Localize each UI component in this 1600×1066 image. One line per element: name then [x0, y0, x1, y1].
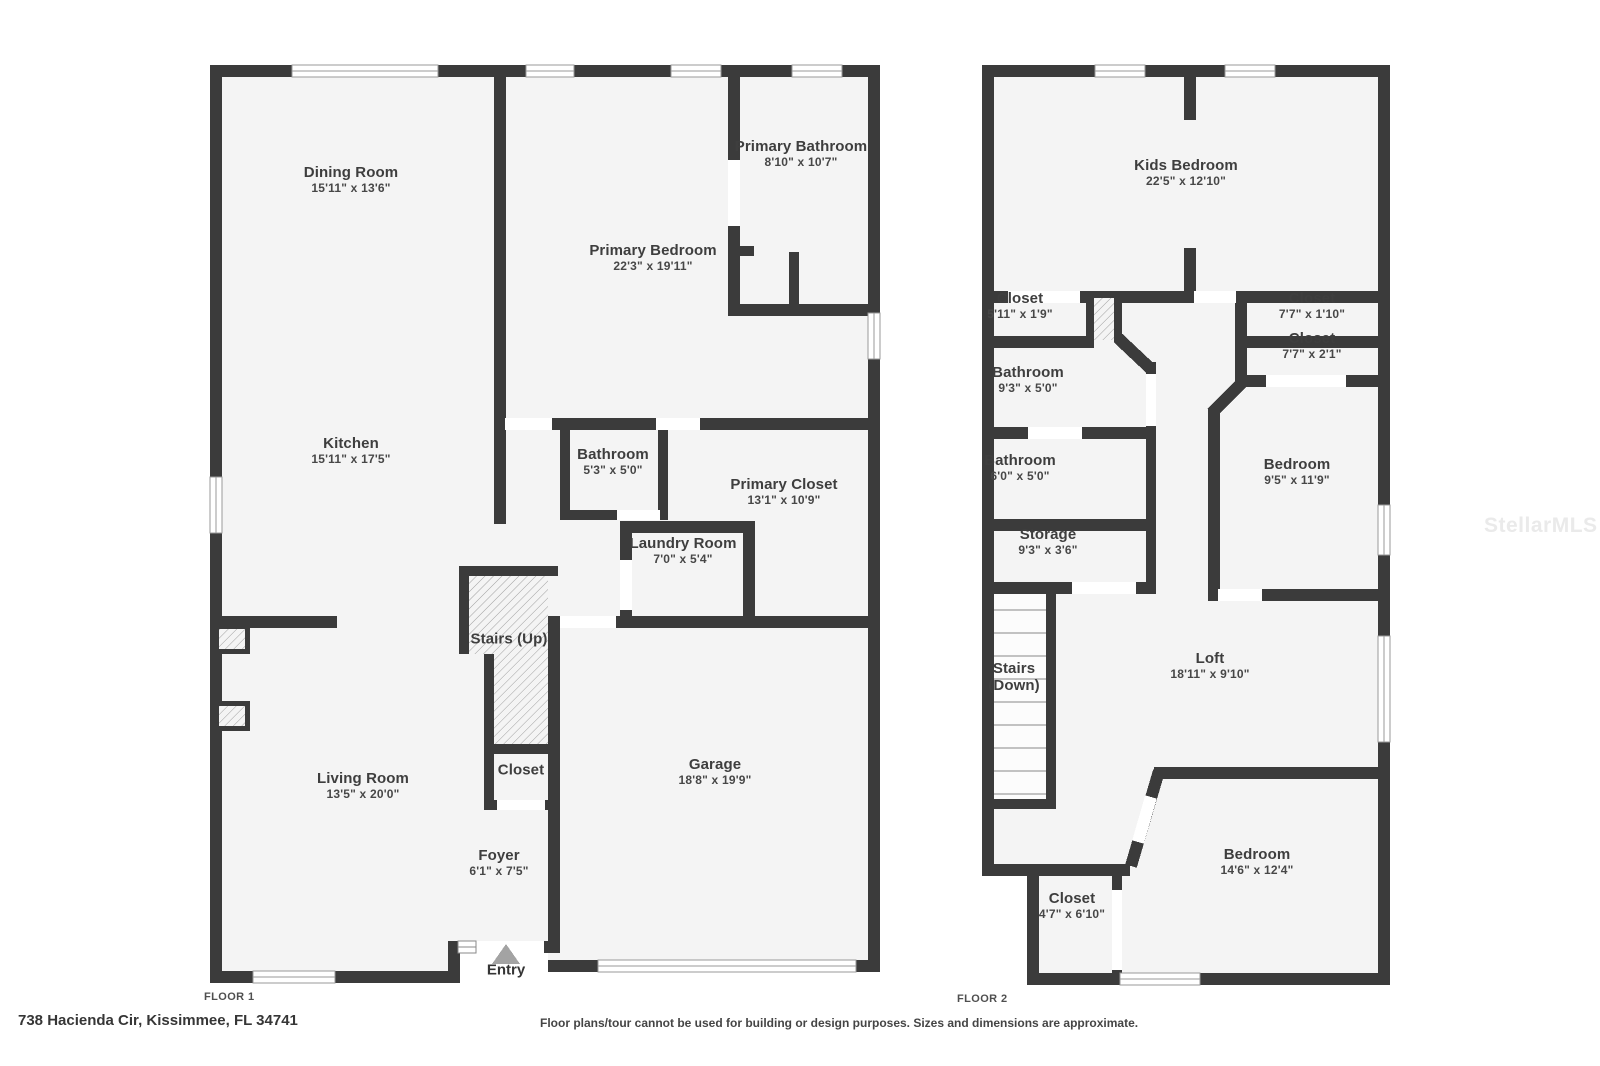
address-text: 738 Hacienda Cir, Kissimmee, FL 34741 [18, 1012, 298, 1029]
room-dimensions: 15'11" x 17'5" [311, 452, 390, 467]
room-name: Storage [1018, 526, 1077, 543]
room-name: Stairs [988, 660, 1039, 677]
room-label: Foyer6'1" x 7'5" [469, 847, 528, 879]
room-label: Primary Bathroom8'10" x 10'7" [735, 138, 867, 170]
room-name: Loft [1170, 650, 1249, 667]
room-label: Primary Bedroom22'3" x 19'11" [589, 242, 716, 274]
room-name: Closet [1279, 290, 1345, 307]
room-name: Garage [678, 756, 751, 773]
fireplace-hatch-1 [219, 629, 245, 649]
room-name: Bathroom [577, 446, 649, 463]
room-label: Closet5'11" x 1'9" [987, 290, 1053, 322]
room-label: Loft18'11" x 9'10" [1170, 650, 1249, 682]
room-dimensions: 6'0" x 5'0" [984, 469, 1056, 484]
watermark: StellarMLS [1484, 514, 1598, 538]
room-label: Bedroom14'6" x 12'4" [1220, 846, 1293, 878]
room-name: Closet [1282, 330, 1341, 347]
room-dimensions: 14'6" x 12'4" [1220, 863, 1293, 878]
room-label: Kitchen15'11" x 17'5" [311, 435, 390, 467]
room-name: Bedroom [1220, 846, 1293, 863]
chase-hatch [1094, 298, 1114, 340]
room-name: Foyer [469, 847, 528, 864]
disclaimer-text: Floor plans/tour cannot be used for buil… [540, 1016, 1138, 1030]
room-dimensions: 9'3" x 3'6" [1018, 543, 1077, 558]
room-label: Kids Bedroom22'5" x 12'10" [1134, 157, 1238, 189]
room-label: Garage18'8" x 19'9" [678, 756, 751, 788]
room-dimensions: 5'11" x 1'9" [987, 307, 1053, 322]
room-name: Primary Bedroom [589, 242, 716, 259]
floor2-plan [982, 65, 1390, 985]
room-dimensions: 7'7" x 2'1" [1282, 347, 1341, 362]
room-name: Living Room [317, 770, 409, 787]
room-name: Bedroom [1264, 456, 1331, 473]
room-dimensions: 7'0" x 5'4" [629, 552, 736, 567]
entry-door-symbol [458, 941, 476, 953]
room-dimensions: 13'1" x 10'9" [730, 493, 837, 508]
room-label: Laundry Room7'0" x 5'4" [629, 535, 736, 567]
room-dimensions: 5'3" x 5'0" [577, 463, 649, 478]
room-dimensions: 9'3" x 5'0" [992, 381, 1064, 396]
room-name: Bathroom [984, 452, 1056, 469]
room-dimensions: 6'1" x 7'5" [469, 864, 528, 879]
room-name: Laundry Room [629, 535, 736, 552]
floor-tag: FLOOR 2 [957, 993, 1007, 1005]
room-dimensions: 22'3" x 19'11" [589, 259, 716, 274]
room-label: Closet [498, 762, 544, 779]
room-name: Closet [498, 762, 544, 779]
room-name: Closet [1039, 890, 1105, 907]
room-label: Closet7'7" x 1'10" [1279, 290, 1345, 322]
floor1-footprint [210, 65, 880, 983]
room-dimensions: 4'7" x 6'10" [1039, 907, 1105, 922]
room-dimensions: 18'8" x 19'9" [678, 773, 751, 788]
floor1-plan [210, 65, 880, 983]
room-dimensions: 13'5" x 20'0" [317, 787, 409, 802]
room-dimensions: 7'7" x 1'10" [1279, 307, 1345, 322]
fireplace-hatch-2 [219, 706, 245, 726]
room-dimensions: 15'11" x 13'6" [304, 181, 398, 196]
room-name: Closet [987, 290, 1053, 307]
room-name: Kids Bedroom [1134, 157, 1238, 174]
stairs-down-treads [994, 594, 1046, 799]
room-label: Bathroom9'3" x 5'0" [992, 364, 1064, 396]
floorplan-page: FLOOR 1Dining Room15'11" x 13'6"Kitchen1… [0, 0, 1600, 1066]
entry-label: Entry [487, 962, 525, 979]
room-label: Primary Closet13'1" x 10'9" [730, 476, 837, 508]
room-label: Living Room13'5" x 20'0" [317, 770, 409, 802]
room-label: Bathroom6'0" x 5'0" [984, 452, 1056, 484]
room-dimensions: 18'11" x 9'10" [1170, 667, 1249, 682]
room-name: Stairs (Up) [471, 631, 548, 648]
room-dimensions: 9'5" x 11'9" [1264, 473, 1331, 488]
room-label: Bathroom5'3" x 5'0" [577, 446, 649, 478]
room-label: Stairs (Up) [471, 631, 548, 648]
room-name: Primary Closet [730, 476, 837, 493]
room-dimensions: 8'10" x 10'7" [735, 155, 867, 170]
room-label: Bedroom9'5" x 11'9" [1264, 456, 1331, 488]
floor-tag: FLOOR 1 [204, 991, 254, 1003]
room-name-line2: (Down) [988, 677, 1039, 694]
room-dimensions: 22'5" x 12'10" [1134, 174, 1238, 189]
room-label: Closet7'7" x 2'1" [1282, 330, 1341, 362]
room-name: Primary Bathroom [735, 138, 867, 155]
room-name: Bathroom [992, 364, 1064, 381]
room-label: Stairs(Down) [988, 660, 1039, 694]
room-label: Storage9'3" x 3'6" [1018, 526, 1077, 558]
room-label: Dining Room15'11" x 13'6" [304, 164, 398, 196]
room-name: Kitchen [311, 435, 390, 452]
room-name: Dining Room [304, 164, 398, 181]
room-label: Closet4'7" x 6'10" [1039, 890, 1105, 922]
